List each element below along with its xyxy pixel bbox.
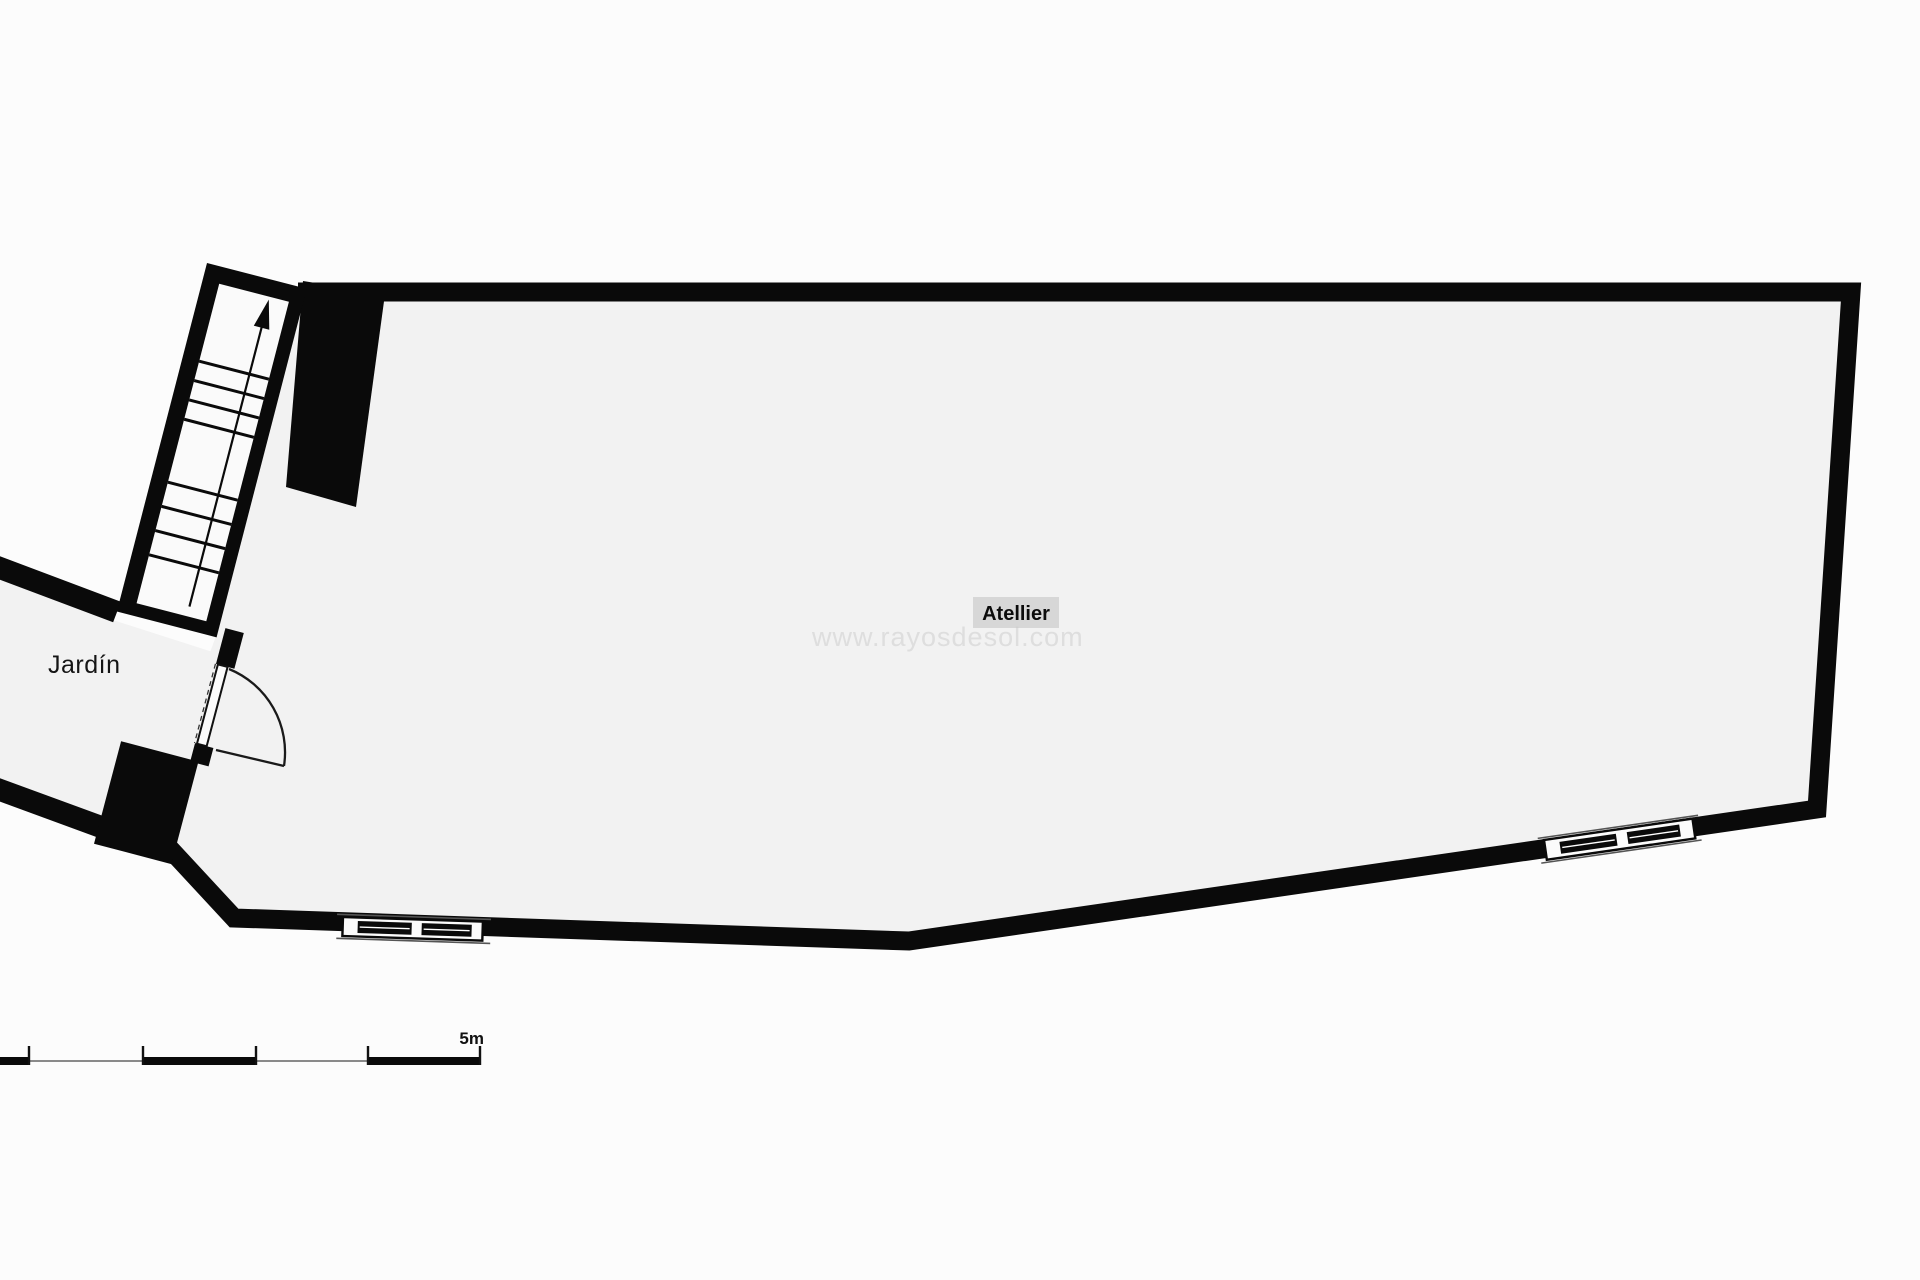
window-bottom-left [336, 914, 491, 943]
floor-plan-page: Atellier www.rayosdesol.com Jardín 5m [0, 0, 1920, 1280]
garden-label: Jardín [48, 651, 120, 679]
scale-bar-segment [0, 1057, 29, 1065]
scale-bar-label: 5m [459, 1029, 484, 1048]
scale-bar-segment [143, 1057, 256, 1065]
watermark-text: www.rayosdesol.com [811, 622, 1084, 652]
scale-bar-segment [368, 1057, 480, 1065]
floor-plan-svg: Atellier www.rayosdesol.com Jardín 5m [0, 0, 1920, 1280]
